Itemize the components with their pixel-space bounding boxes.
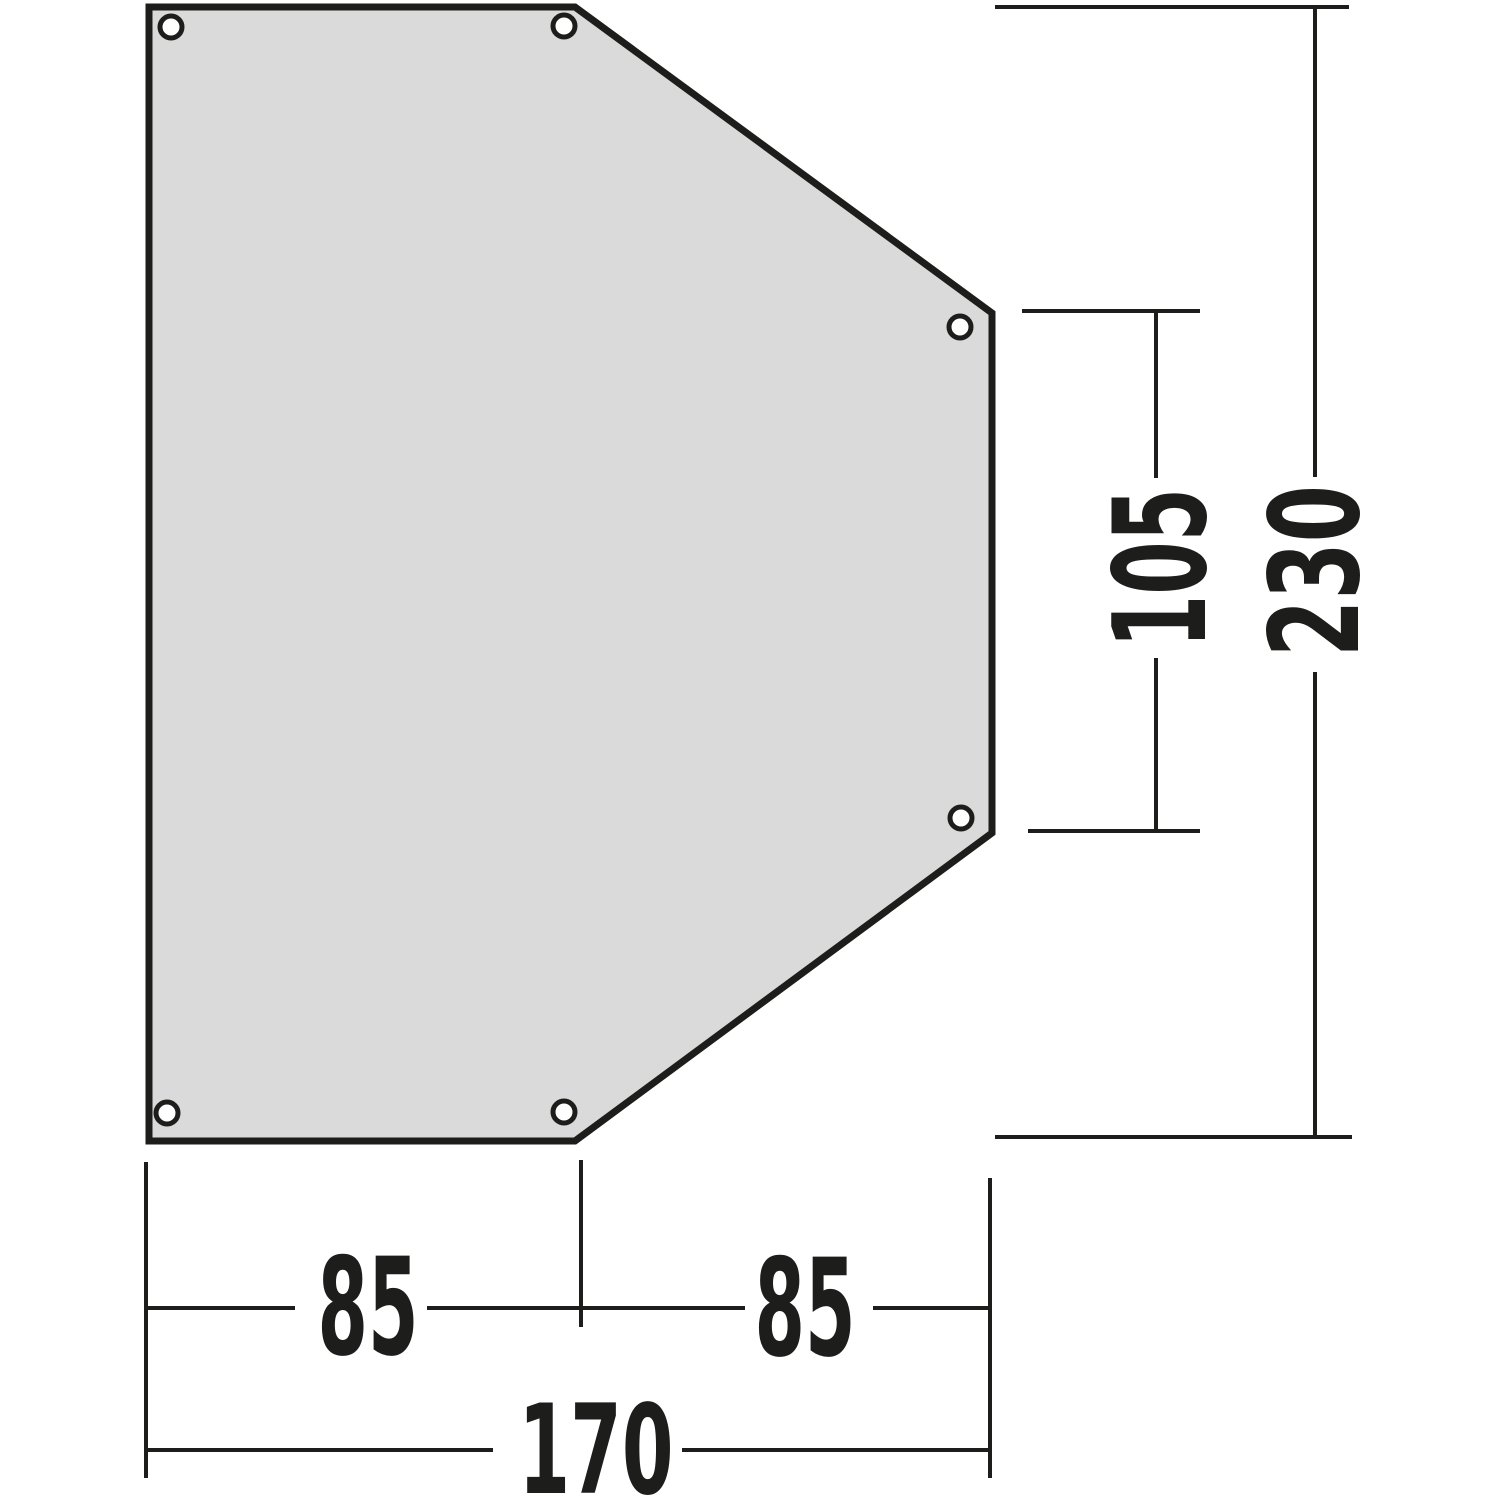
grommet-hole-bottom-left (156, 1102, 178, 1124)
grommet-hole-right-lower (950, 807, 972, 829)
dim-label-85-left: 85 (318, 1229, 419, 1386)
dim-label-230: 230 (1244, 485, 1388, 657)
dim-label-170: 170 (519, 1379, 674, 1500)
grommet-hole-top-left (160, 16, 182, 38)
grommet-hole-top-right (553, 15, 575, 37)
footprint-panel-shape (149, 7, 992, 1141)
grommet-hole-bottom-middle (553, 1101, 575, 1123)
dimension-drawing-canvas: 105 230 85 85 170 (0, 0, 1500, 1500)
dim-label-85-right: 85 (755, 1230, 856, 1387)
dim-label-105: 105 (1087, 488, 1236, 648)
footprint-dimension-diagram: 105 230 85 85 170 (0, 0, 1500, 1500)
grommet-hole-right-upper (949, 316, 971, 338)
